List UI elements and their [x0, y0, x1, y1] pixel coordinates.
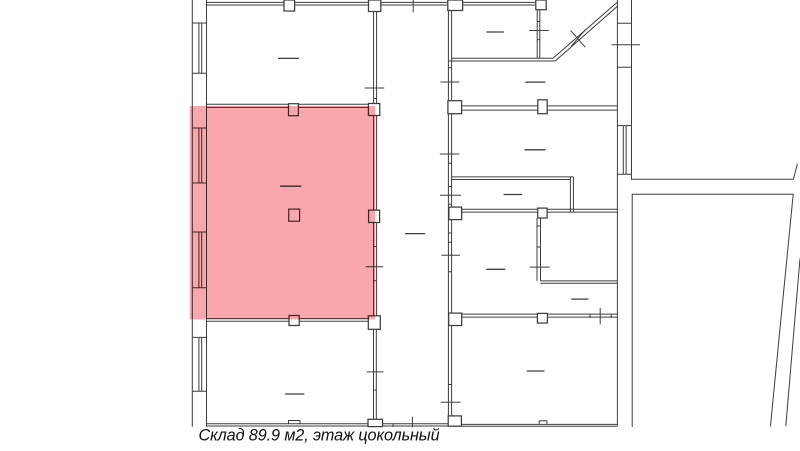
svg-text:Склад 89.9 м2, этаж цокольный: Склад 89.9 м2, этаж цокольный [199, 427, 440, 445]
